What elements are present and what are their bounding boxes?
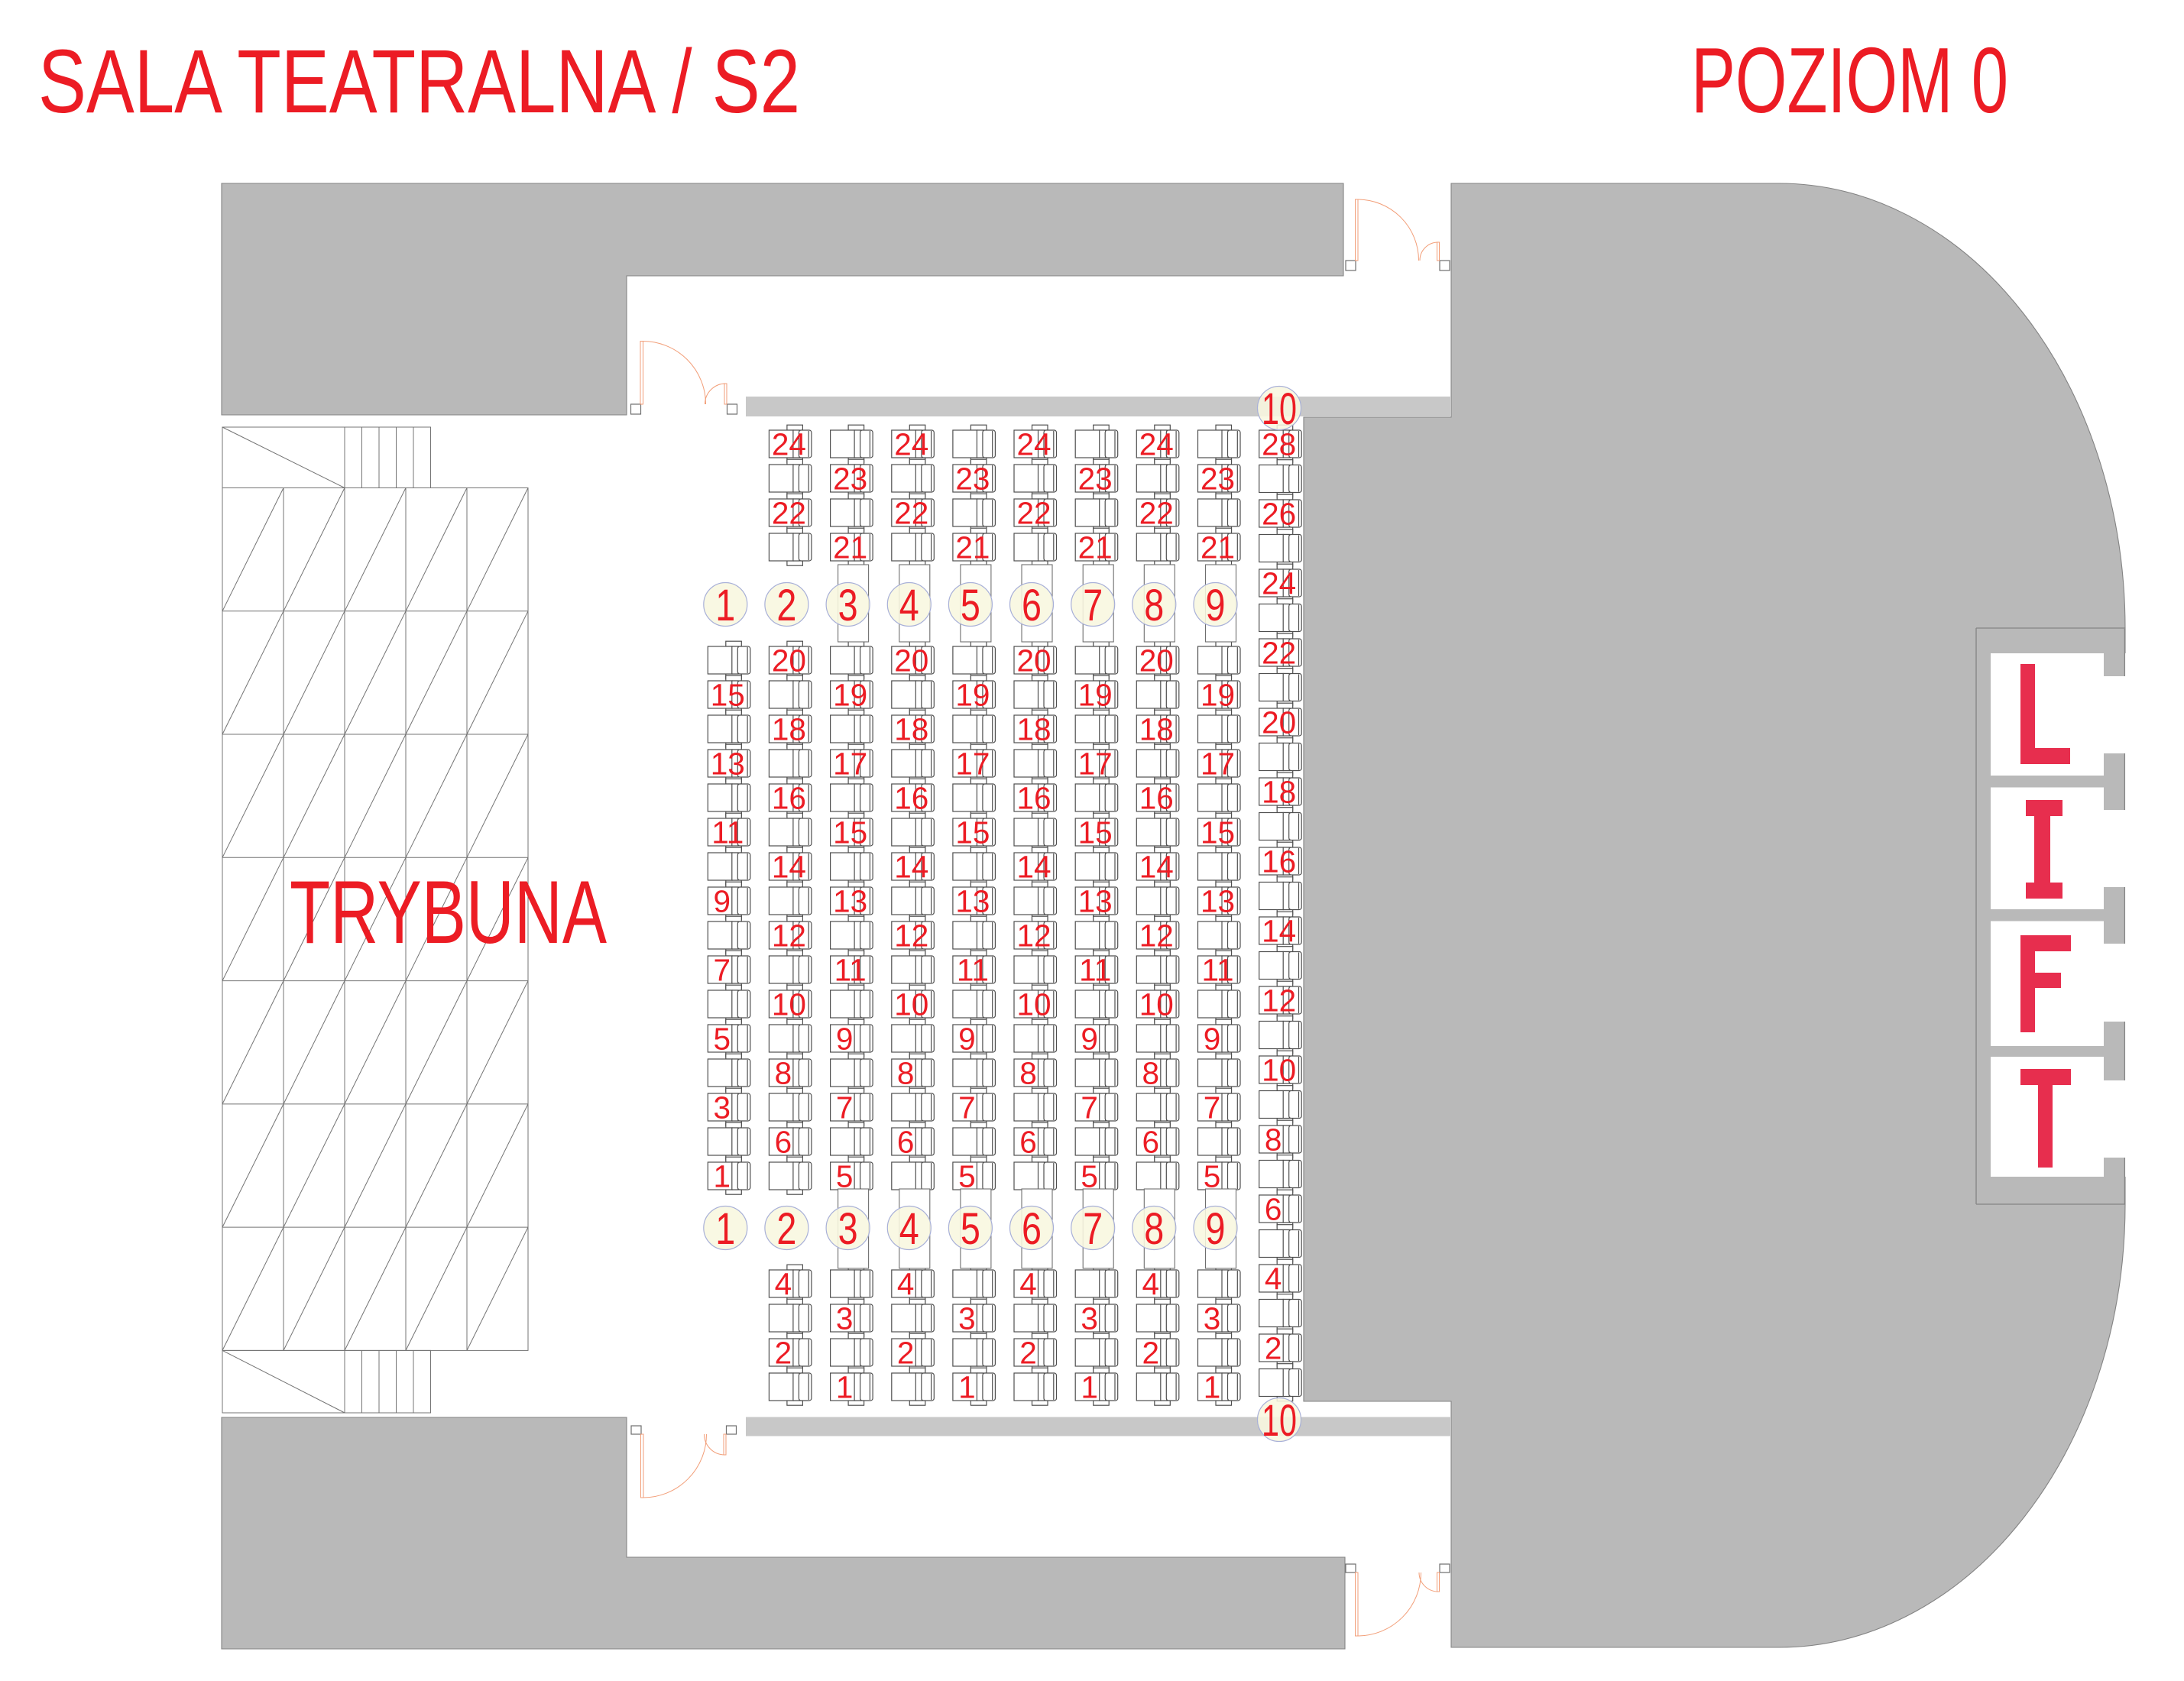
svg-text:20: 20: [1139, 643, 1174, 679]
svg-text:5: 5: [958, 1159, 976, 1194]
svg-text:16: 16: [894, 781, 928, 816]
svg-text:28: 28: [1262, 427, 1296, 462]
svg-text:23: 23: [955, 462, 990, 497]
svg-text:1: 1: [714, 1159, 731, 1194]
svg-text:22: 22: [1262, 636, 1296, 671]
svg-text:8: 8: [1144, 1204, 1164, 1254]
svg-text:8: 8: [897, 1056, 915, 1091]
svg-text:2: 2: [1142, 1336, 1160, 1371]
svg-text:8: 8: [1144, 581, 1164, 630]
svg-text:11: 11: [1201, 953, 1233, 988]
svg-text:18: 18: [1016, 712, 1051, 747]
svg-text:1: 1: [715, 581, 735, 630]
svg-text:6: 6: [775, 1125, 792, 1160]
svg-text:23: 23: [1201, 462, 1235, 497]
svg-text:21: 21: [1078, 530, 1113, 565]
svg-text:14: 14: [1262, 914, 1296, 949]
svg-text:5: 5: [1081, 1159, 1098, 1194]
svg-text:9: 9: [1204, 1022, 1221, 1057]
svg-text:19: 19: [833, 678, 867, 713]
svg-text:10: 10: [894, 987, 928, 1022]
svg-text:3: 3: [1081, 1301, 1098, 1336]
svg-text:24: 24: [1016, 427, 1051, 462]
svg-text:24: 24: [894, 427, 928, 462]
svg-text:4: 4: [1142, 1267, 1160, 1302]
svg-text:12: 12: [894, 918, 928, 954]
svg-text:12: 12: [1139, 918, 1174, 954]
svg-text:6: 6: [1265, 1192, 1282, 1227]
svg-text:7: 7: [1204, 1090, 1221, 1126]
svg-text:POZIOM 0: POZIOM 0: [1691, 28, 2008, 132]
svg-text:24: 24: [1262, 566, 1296, 601]
svg-text:11: 11: [834, 953, 867, 988]
svg-text:2: 2: [1265, 1331, 1282, 1366]
svg-text:12: 12: [1016, 918, 1051, 954]
svg-text:19: 19: [1201, 678, 1235, 713]
svg-text:4: 4: [1019, 1267, 1037, 1302]
svg-text:16: 16: [772, 781, 806, 816]
svg-text:24: 24: [1139, 427, 1174, 462]
svg-text:18: 18: [1139, 712, 1174, 747]
svg-text:2: 2: [1019, 1336, 1037, 1371]
svg-text:18: 18: [772, 712, 806, 747]
svg-text:13: 13: [711, 747, 745, 782]
svg-text:22: 22: [894, 496, 928, 531]
svg-text:7: 7: [1081, 1090, 1098, 1126]
svg-text:TRYBUNA: TRYBUNA: [290, 862, 607, 962]
svg-text:18: 18: [1262, 775, 1296, 810]
svg-text:6: 6: [1019, 1125, 1037, 1160]
svg-text:20: 20: [894, 643, 928, 679]
svg-text:4: 4: [899, 1204, 919, 1254]
svg-text:6: 6: [1022, 1204, 1042, 1254]
svg-text:9: 9: [1206, 581, 1226, 630]
svg-text:4: 4: [1265, 1262, 1282, 1297]
svg-text:20: 20: [1262, 705, 1296, 740]
svg-text:17: 17: [833, 747, 867, 782]
svg-text:1: 1: [1081, 1370, 1098, 1405]
svg-text:2: 2: [897, 1336, 915, 1371]
svg-text:2: 2: [775, 1336, 792, 1371]
svg-text:8: 8: [1142, 1056, 1160, 1091]
svg-text:5: 5: [1204, 1159, 1221, 1194]
svg-text:8: 8: [1265, 1122, 1282, 1158]
svg-text:3: 3: [838, 1204, 858, 1254]
svg-text:3: 3: [958, 1301, 976, 1336]
svg-text:15: 15: [1078, 815, 1113, 850]
svg-text:14: 14: [894, 850, 928, 885]
svg-text:9: 9: [1206, 1204, 1226, 1254]
svg-text:10: 10: [1016, 987, 1051, 1022]
svg-text:9: 9: [714, 884, 731, 919]
svg-text:5: 5: [714, 1022, 731, 1057]
svg-text:6: 6: [1142, 1125, 1160, 1160]
svg-text:4: 4: [897, 1267, 915, 1302]
svg-text:7: 7: [1083, 1204, 1103, 1254]
svg-text:8: 8: [775, 1056, 792, 1091]
svg-text:10: 10: [772, 987, 806, 1022]
svg-text:9: 9: [958, 1022, 976, 1057]
svg-text:10: 10: [1262, 1053, 1296, 1088]
svg-text:9: 9: [1081, 1022, 1098, 1057]
svg-text:4: 4: [775, 1267, 792, 1302]
svg-text:5: 5: [961, 581, 980, 630]
svg-text:10: 10: [1262, 1396, 1297, 1446]
svg-text:16: 16: [1262, 844, 1296, 879]
svg-text:7: 7: [958, 1090, 976, 1126]
svg-text:17: 17: [955, 747, 990, 782]
svg-text:6: 6: [897, 1125, 915, 1160]
svg-text:20: 20: [772, 643, 806, 679]
svg-text:18: 18: [894, 712, 928, 747]
svg-text:15: 15: [833, 815, 867, 850]
svg-text:23: 23: [1078, 462, 1113, 497]
svg-text:22: 22: [772, 496, 806, 531]
svg-text:16: 16: [1016, 781, 1051, 816]
svg-text:7: 7: [714, 953, 731, 988]
svg-text:1: 1: [1204, 1370, 1221, 1405]
svg-text:22: 22: [1016, 496, 1051, 531]
svg-text:11: 11: [711, 815, 744, 850]
svg-text:3: 3: [1204, 1301, 1221, 1336]
svg-text:21: 21: [833, 530, 867, 565]
svg-text:5: 5: [961, 1204, 980, 1254]
svg-text:2: 2: [776, 1204, 796, 1254]
svg-text:4: 4: [899, 581, 919, 630]
svg-text:1: 1: [958, 1370, 976, 1405]
svg-text:1: 1: [836, 1370, 854, 1405]
svg-text:13: 13: [833, 884, 867, 919]
svg-text:8: 8: [1019, 1056, 1037, 1091]
svg-text:SALA TEATRALNA / S2: SALA TEATRALNA / S2: [38, 31, 800, 132]
svg-text:20: 20: [1016, 643, 1051, 679]
svg-text:9: 9: [836, 1022, 854, 1057]
svg-text:13: 13: [1201, 884, 1235, 919]
svg-text:11: 11: [957, 953, 989, 988]
svg-text:5: 5: [836, 1159, 854, 1194]
svg-text:15: 15: [1201, 815, 1235, 850]
svg-text:3: 3: [714, 1090, 731, 1126]
svg-text:13: 13: [955, 884, 990, 919]
svg-text:22: 22: [1139, 496, 1174, 531]
svg-text:14: 14: [1139, 850, 1174, 885]
svg-text:17: 17: [1201, 747, 1235, 782]
svg-text:14: 14: [1016, 850, 1051, 885]
svg-text:21: 21: [1201, 530, 1235, 565]
svg-text:7: 7: [1083, 581, 1103, 630]
svg-text:3: 3: [838, 581, 858, 630]
svg-text:11: 11: [1079, 953, 1111, 988]
svg-text:12: 12: [772, 918, 806, 954]
svg-text:19: 19: [955, 678, 990, 713]
svg-text:17: 17: [1078, 747, 1113, 782]
svg-text:21: 21: [955, 530, 990, 565]
svg-text:19: 19: [1078, 678, 1113, 713]
svg-text:2: 2: [776, 581, 796, 630]
svg-text:23: 23: [833, 462, 867, 497]
svg-text:10: 10: [1139, 987, 1174, 1022]
svg-text:26: 26: [1262, 497, 1296, 532]
svg-text:15: 15: [955, 815, 990, 850]
svg-text:13: 13: [1078, 884, 1113, 919]
svg-text:24: 24: [772, 427, 806, 462]
svg-text:1: 1: [715, 1204, 735, 1254]
svg-text:3: 3: [836, 1301, 854, 1336]
svg-text:16: 16: [1139, 781, 1174, 816]
svg-text:15: 15: [711, 678, 745, 713]
svg-text:7: 7: [836, 1090, 854, 1126]
svg-text:14: 14: [772, 850, 806, 885]
svg-text:12: 12: [1262, 983, 1296, 1019]
svg-text:6: 6: [1022, 581, 1042, 630]
